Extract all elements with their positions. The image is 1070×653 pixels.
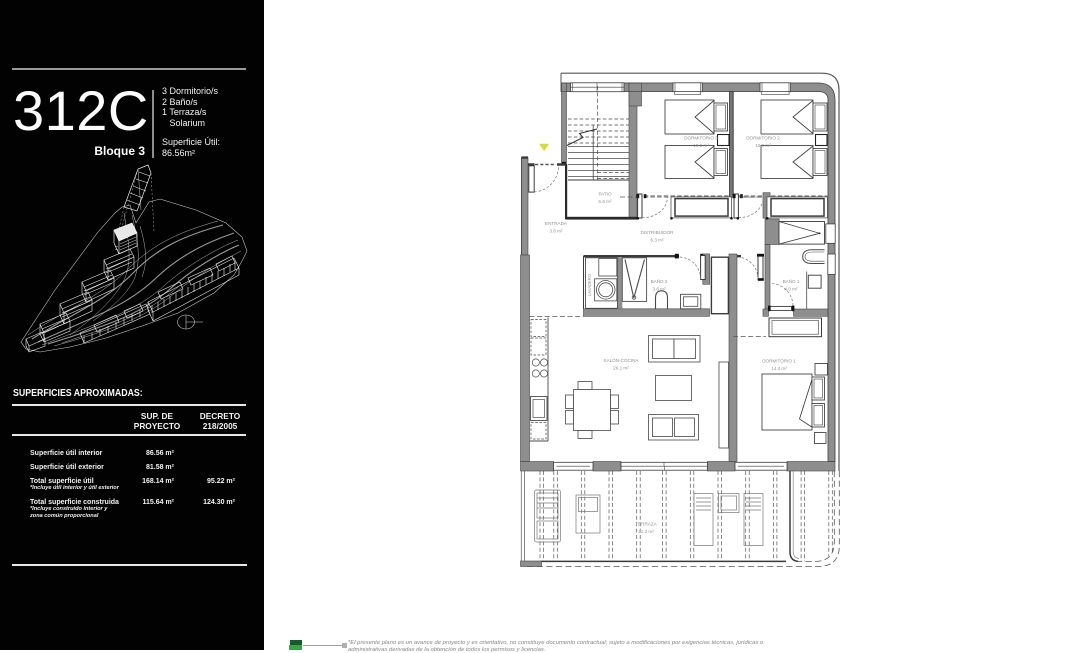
svg-text:3.6 m²: 3.6 m² (549, 229, 562, 234)
svg-text:LAVADERO: LAVADERO (587, 273, 592, 296)
svg-text:6.6 m²: 6.6 m² (598, 199, 611, 204)
svg-text:31.2 m²: 31.2 m² (638, 529, 654, 534)
svg-text:4.0 m²: 4.0 m² (784, 287, 797, 292)
svg-text:26.1 m²: 26.1 m² (613, 366, 629, 371)
svg-text:10.5 m²: 10.5 m² (693, 143, 709, 148)
svg-text:14.4 m²: 14.4 m² (771, 366, 787, 371)
svg-text:6.3 m²: 6.3 m² (650, 238, 663, 243)
svg-text:DORMITORIO 2: DORMITORIO 2 (746, 136, 780, 141)
svg-text:3.6 m²: 3.6 m² (652, 287, 665, 292)
svg-text:SALÓN-COCINA: SALÓN-COCINA (604, 357, 640, 363)
svg-text:ENTRADA: ENTRADA (545, 221, 568, 226)
svg-text:BAÑO 1: BAÑO 1 (783, 278, 800, 284)
svg-text:DISTRIBUIDOR: DISTRIBUIDOR (641, 230, 675, 235)
svg-text:PATIO: PATIO (598, 192, 612, 197)
svg-text:DORMITORIO 3: DORMITORIO 3 (684, 136, 718, 141)
svg-text:DORMITORIO 1: DORMITORIO 1 (762, 359, 796, 364)
svg-text:TERRAZA: TERRAZA (635, 522, 657, 527)
svg-text:10.0 m²: 10.0 m² (755, 143, 771, 148)
svg-text:BAÑO 2: BAÑO 2 (651, 278, 668, 284)
